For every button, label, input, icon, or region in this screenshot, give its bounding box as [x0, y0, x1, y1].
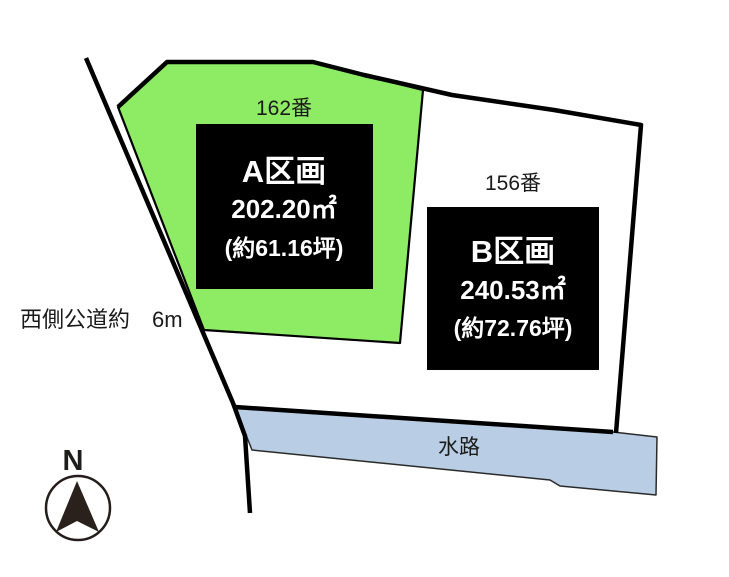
parcel-b-name: B区画	[471, 234, 555, 269]
parcel-a-area-m2: 202.20㎡	[231, 194, 337, 224]
parcel-a-name: A区画	[242, 154, 326, 189]
waterway-label: 水路	[438, 436, 480, 459]
compass: N	[46, 445, 110, 540]
parcel-b-area-m2: 240.53㎡	[460, 275, 566, 305]
parcel-a-area-tsubo: (約61.16坪)	[225, 235, 344, 261]
plot-map-canvas: A区画 202.20㎡ (約61.16坪) B区画 240.53㎡ (約72.7…	[0, 0, 729, 577]
compass-north-label: N	[63, 445, 84, 477]
west-road-label: 西側公道約 6m	[20, 307, 183, 332]
land-plot-diagram: A区画 202.20㎡ (約61.16坪) B区画 240.53㎡ (約72.7…	[0, 0, 729, 577]
parcel-b-lot-number: 156番	[485, 172, 541, 195]
parcel-a-lot-number: 162番	[256, 97, 312, 120]
parcel-b-area-tsubo: (約72.76坪)	[454, 315, 573, 341]
